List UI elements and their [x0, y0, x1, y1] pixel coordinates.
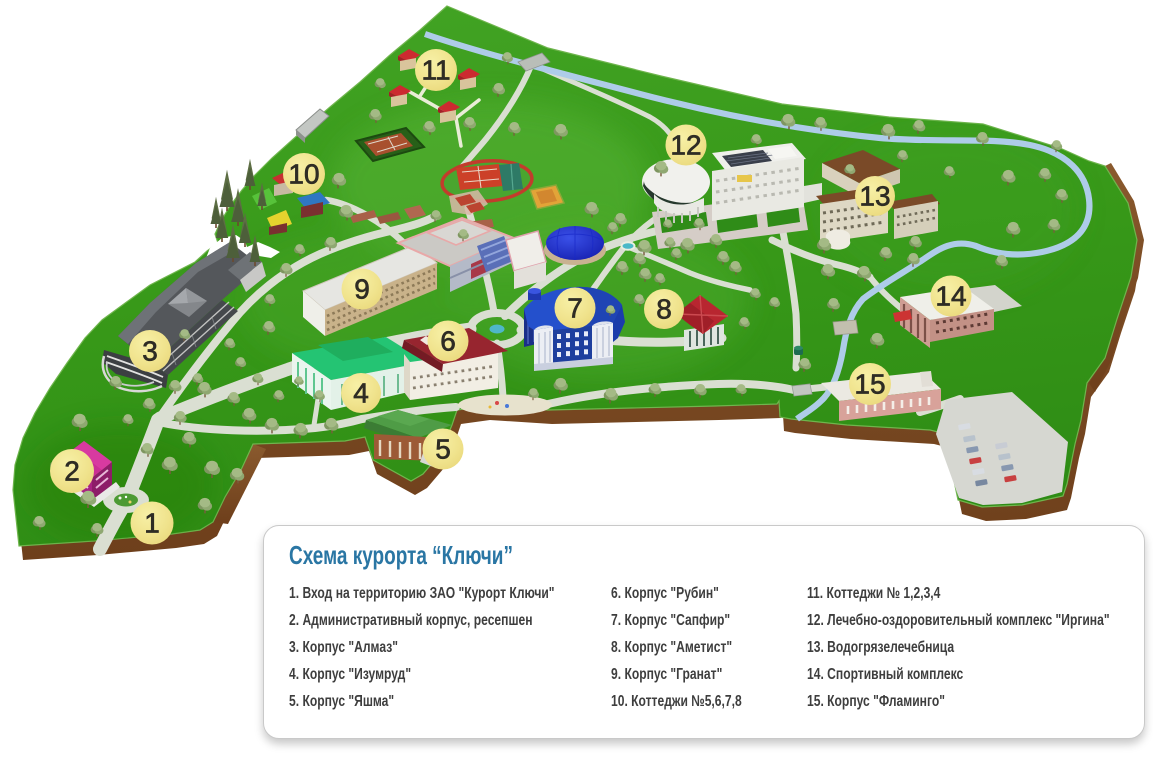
svg-text:10: 10	[288, 159, 319, 190]
svg-text:4: 4	[353, 378, 369, 409]
svg-text:14: 14	[935, 281, 966, 312]
svg-text:5: 5	[435, 434, 451, 465]
svg-text:6: 6	[440, 326, 456, 357]
svg-text:7: 7	[567, 293, 583, 324]
svg-text:8: 8	[656, 294, 672, 325]
svg-text:13: 13	[859, 181, 890, 212]
svg-text:9: 9	[354, 274, 370, 305]
svg-text:2: 2	[64, 456, 80, 487]
svg-text:3: 3	[142, 336, 158, 367]
svg-text:11: 11	[421, 55, 450, 86]
svg-text:15: 15	[854, 369, 885, 400]
svg-text:1: 1	[144, 508, 160, 539]
svg-text:12: 12	[670, 130, 701, 161]
